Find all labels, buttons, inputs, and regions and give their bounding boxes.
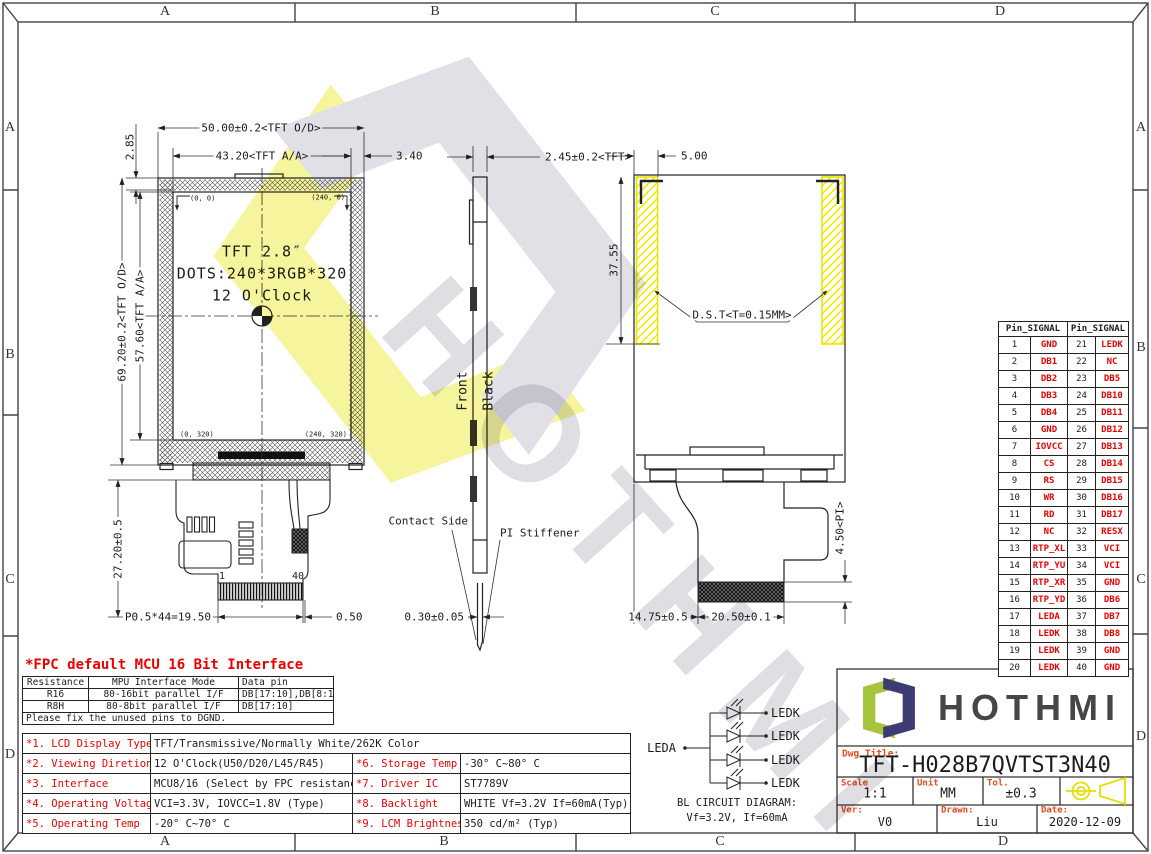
pin-row: 5DB425DB11 [999, 405, 1129, 422]
zone-bottom-d: D [998, 835, 1008, 849]
zone-top-b: B [430, 5, 439, 19]
pin-row: 4DB324DB10 [999, 388, 1129, 405]
front-size-label: TFT 2.8″ [222, 245, 302, 260]
fpc-col-header: MPU Interface Mode [89, 677, 239, 689]
fpc-interface-table: ResistanceMPU Interface ModeData pin R16… [22, 676, 334, 725]
zone-left-c: C [5, 573, 14, 587]
pin-row: 19LEDK39GND [999, 643, 1129, 660]
fpc-note-title: *FPC default MCU 16 Bit Interface [25, 658, 303, 672]
front-view [108, 124, 392, 623]
dim-tape-height: 37.55 [609, 241, 620, 278]
scale-value: 1:1 [863, 788, 886, 801]
spec-row: *4. Operating VoltageVCI=3.3V, IOVCC=1.8… [23, 794, 631, 814]
zone-right-b: B [1136, 341, 1145, 355]
drawn-value: Liu [976, 816, 998, 828]
coord-origin: (0, 0) [190, 196, 215, 203]
dim-active-height: 57.60<TFT A/A> [135, 268, 146, 365]
pin-row: 2DB122NC [999, 354, 1129, 371]
zone-bottom-b: B [439, 835, 448, 849]
pin-row: 6GND26DB12 [999, 422, 1129, 439]
bl-anode-label: LEDA [647, 742, 676, 754]
pin-row: 17LEDA37DB7 [999, 609, 1129, 626]
pin-row: 13RTP_XL33VCI [999, 541, 1129, 558]
fpc-col-header: Data pin [239, 677, 334, 689]
zone-right-c: C [1136, 573, 1145, 587]
hothmi-logo-icon [863, 678, 915, 739]
front-clock-label: 12 O'Clock [212, 289, 312, 304]
pi-stiffener-label: PI Stiffener [500, 528, 579, 539]
dim-pin-pitch: P0.5*44=19.50 [123, 612, 213, 623]
pin-row: 3DB223DB5 [999, 371, 1129, 388]
zone-right-d: D [1136, 730, 1146, 744]
coord-bottom-left: (0, 320) [180, 432, 214, 439]
zone-top-a: A [160, 5, 170, 19]
version-label: Ver: [841, 807, 863, 816]
zone-left-a: A [5, 121, 15, 135]
dim-active-width: 43.20<TFT A/A> [214, 151, 311, 162]
zone-right-a: A [1136, 121, 1146, 135]
bl-circuit [683, 699, 768, 790]
pin-row: 16RTP_YD36DB6 [999, 592, 1129, 609]
zone-bottom-a: A [160, 835, 170, 849]
dim-tail-offset: 14.75±0.5 [626, 612, 690, 623]
date-value: 2020-12-09 [1049, 816, 1121, 828]
pin-row: 20LEDK40GND [999, 660, 1129, 677]
pin-row: 8CS28DB14 [999, 456, 1129, 473]
bl-cathode-label: LEDK [771, 730, 800, 742]
bl-caption-values: Vf=3.2V, If=60mA [686, 813, 787, 824]
unit-value: MM [940, 788, 956, 801]
pin-row: 1GND21LEDK [999, 337, 1129, 354]
drawing-sheet: A B C D A B C D A B C D A B C D TFT 2.8″… [0, 0, 1151, 854]
pin-row: 12NC32RESX [999, 524, 1129, 541]
zone-bottom-c: C [715, 835, 724, 849]
dim-fpc-length: 27.20±0.5 [113, 517, 124, 581]
side-back-label: Black [483, 371, 496, 410]
pin-table-header: Pin_SIGNAL [999, 322, 1068, 337]
dim-fpc-thickness: 0.30±0.05 [402, 612, 466, 623]
dim-pin-margin: 0.50 [336, 612, 363, 623]
pin-row: 15RTP_XR35GND [999, 575, 1129, 592]
tolerance-value: ±0.3 [1005, 788, 1036, 801]
dim-top-gap: 2.85 [125, 134, 136, 161]
spec-row: *5. Operating Temp-20° C~70° C*9. LCM Br… [23, 814, 631, 834]
fpc-col-header: Resistance [23, 677, 89, 689]
bl-cathode-label: LEDK [771, 707, 800, 719]
contact-side-label: Contact Side [389, 516, 468, 527]
zone-top-d: D [995, 5, 1005, 19]
fpc-row: R8H80-8bit parallel I/FDB[17:10] [23, 701, 334, 713]
zone-left-b: B [5, 348, 14, 362]
dim-pi-height: 4.50<PI> [835, 502, 846, 555]
dim-thickness: 2.45±0.2<TFT> [545, 152, 631, 163]
bl-cathode-label: LEDK [771, 754, 800, 766]
drawing-title: TFT-H028B7QVTST3N40 [859, 755, 1111, 777]
fpc-footer-row: Please fix the unused pins to DGND. [23, 713, 334, 725]
dim-outline-height: 69.20±0.2<TFT O/D> [117, 260, 128, 383]
zone-left-d: D [5, 748, 15, 762]
projection-symbol-icon [1066, 778, 1125, 804]
back-view [606, 150, 852, 624]
unit-label: Unit [917, 780, 939, 789]
dim-tape-width: 5.00 [681, 151, 708, 162]
dim-outline-width: 50.00±0.2<TFT O/D> [199, 123, 322, 134]
pin-row: 18LEDK38DB8 [999, 626, 1129, 643]
pin-row: 7IOVCC27DB13 [999, 439, 1129, 456]
dim-tail-width: 20.50±0.1 [709, 612, 773, 623]
dim-right-gap: 3.40 [396, 151, 423, 162]
bl-caption: BL CIRCUIT DIAGRAM: [677, 798, 797, 809]
spec-row: *2. Viewing Diretion12 O'Clock(U50/D20/L… [23, 754, 631, 774]
drawn-label: Drawn: [941, 807, 974, 816]
pin-40-label: 40 [292, 572, 304, 582]
pin-1-label: 1 [219, 572, 225, 582]
coord-top-right: (240, 0) [311, 195, 345, 202]
brand-wordmark: HOTHMI [938, 690, 1122, 726]
fpc-row: R1680-16bit parallel I/FDB[17:10],DB[8:1… [23, 689, 334, 701]
zone-top-c: C [710, 5, 719, 19]
pin-row: 11RD31DB17 [999, 507, 1129, 524]
tape-callout: D.S.T<T=0.15MM> [690, 310, 793, 321]
pin-row: 14RTP_YU34VCI [999, 558, 1129, 575]
fpc-footer-note: Please fix the unused pins to DGND. [23, 713, 334, 725]
pin-table-header: Pin_SIGNAL [1068, 322, 1129, 337]
front-dots-label: DOTS:240*3RGB*320 [177, 267, 348, 282]
side-front-label: Front [457, 371, 470, 410]
pin-row: 10WR30DB16 [999, 490, 1129, 507]
spec-row: *3. InterfaceMCU8/16 (Select by FPC resi… [23, 774, 631, 794]
version-value: V0 [878, 816, 892, 828]
spec-table: *1. LCD Display TypeTFT/Transmissive/Nor… [22, 733, 631, 834]
spec-row: *1. LCD Display TypeTFT/Transmissive/Nor… [23, 734, 631, 754]
pin-signal-table: Pin_SIGNALPin_SIGNAL 1GND21LEDK 2DB122NC… [998, 321, 1129, 677]
bl-cathode-label: LEDK [771, 777, 800, 789]
pin-row: 9RS29DB15 [999, 473, 1129, 490]
coord-bottom-right: (240, 320) [305, 432, 347, 439]
